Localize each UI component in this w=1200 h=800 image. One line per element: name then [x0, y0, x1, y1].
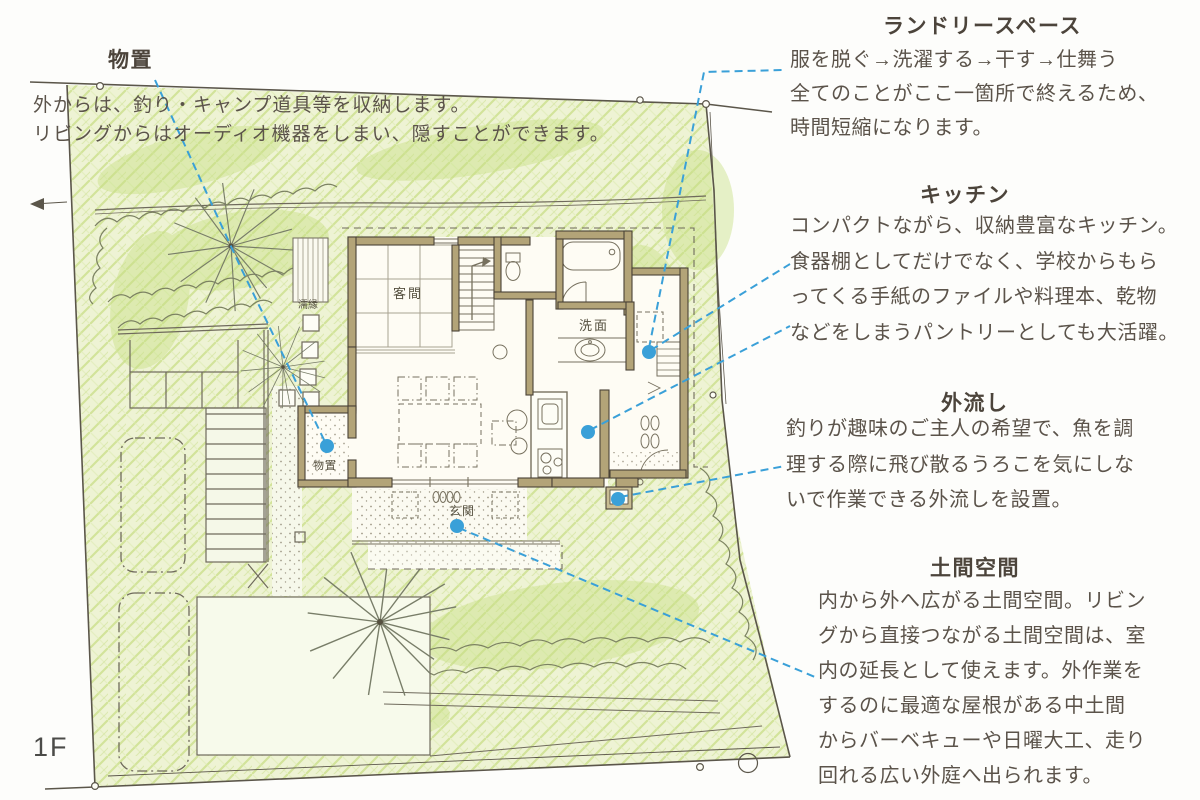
- entrance-label: 玄関: [449, 503, 475, 518]
- marker-kitchen: [581, 425, 595, 439]
- annotation-doma-body: 内から外へ広がる土間空間。リビン グから直接つながる土間空間は、室 内の延長とし…: [818, 584, 1146, 794]
- guest-room-label: 客間: [393, 286, 423, 301]
- floor-plan-page: 客間 洗面 物置 玄関 濡縁 物置 外からは、釣り・キャンプ道具等を収納します。…: [0, 0, 1200, 800]
- annotation-storage-title: 物置: [108, 44, 153, 74]
- annotation-kitchen-body: コンパクトながら、収納豊富なキッチン。 食器棚としてだけでなく、学校からもら っ…: [790, 209, 1179, 351]
- washroom-label: 洗面: [579, 318, 609, 333]
- marker-outdoor-sink: [611, 492, 625, 506]
- floor-label: 1F: [33, 732, 69, 763]
- annotation-doma-title: 土間空間: [930, 552, 1020, 582]
- annotation-laundry-title: ランドリースペース: [883, 10, 1082, 40]
- annotation-kitchen-title: キッチン: [920, 179, 1010, 209]
- annotation-storage-body: 外からは、釣り・キャンプ道具等を収納します。 リビングからはオーディオ機器をしま…: [33, 91, 610, 149]
- annotation-outdoor-sink-body: 釣りが趣味のご主人の希望で、魚を調 理する際に飛び散るうろこを気にしな いで作業…: [786, 412, 1135, 519]
- marker-entrance-doma: [450, 519, 464, 533]
- storage-room-label: 物置: [313, 458, 337, 472]
- veranda-label: 濡縁: [298, 298, 318, 311]
- annotation-laundry-body: 服を脱ぐ→洗濯する→干す→仕舞う 全てのことがここ一箇所で終えるため、 時間短縮…: [790, 43, 1158, 145]
- marker-storage: [320, 439, 334, 453]
- marker-laundry-pantry: [642, 345, 656, 359]
